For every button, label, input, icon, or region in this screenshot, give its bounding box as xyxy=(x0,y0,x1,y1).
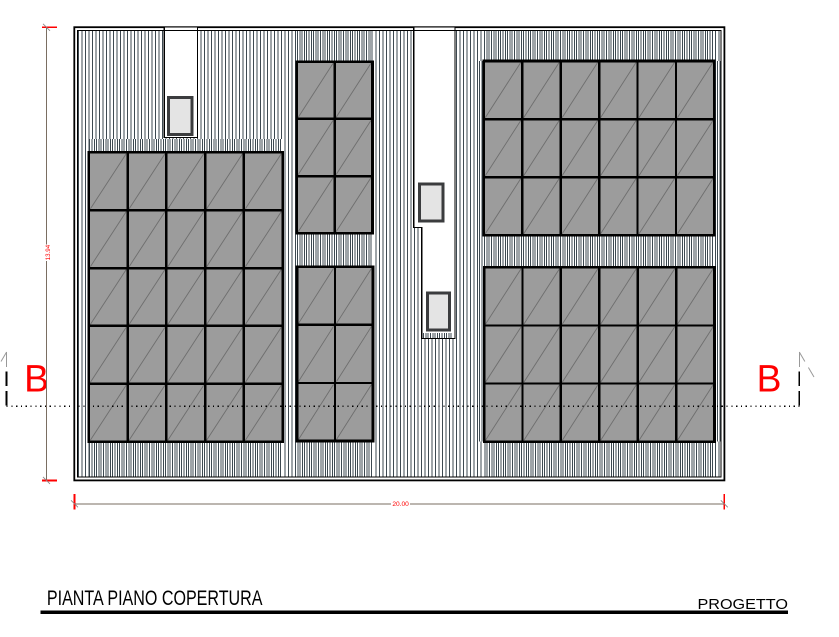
svg-text:B: B xyxy=(24,357,49,399)
svg-text:PIANTA PIANO COPERTURA: PIANTA PIANO COPERTURA xyxy=(47,587,263,610)
svg-text:PROGETTO: PROGETTO xyxy=(698,596,789,613)
svg-text:13.94: 13.94 xyxy=(45,244,52,260)
svg-text:20.00: 20.00 xyxy=(392,501,409,508)
svg-text:B: B xyxy=(757,357,782,399)
